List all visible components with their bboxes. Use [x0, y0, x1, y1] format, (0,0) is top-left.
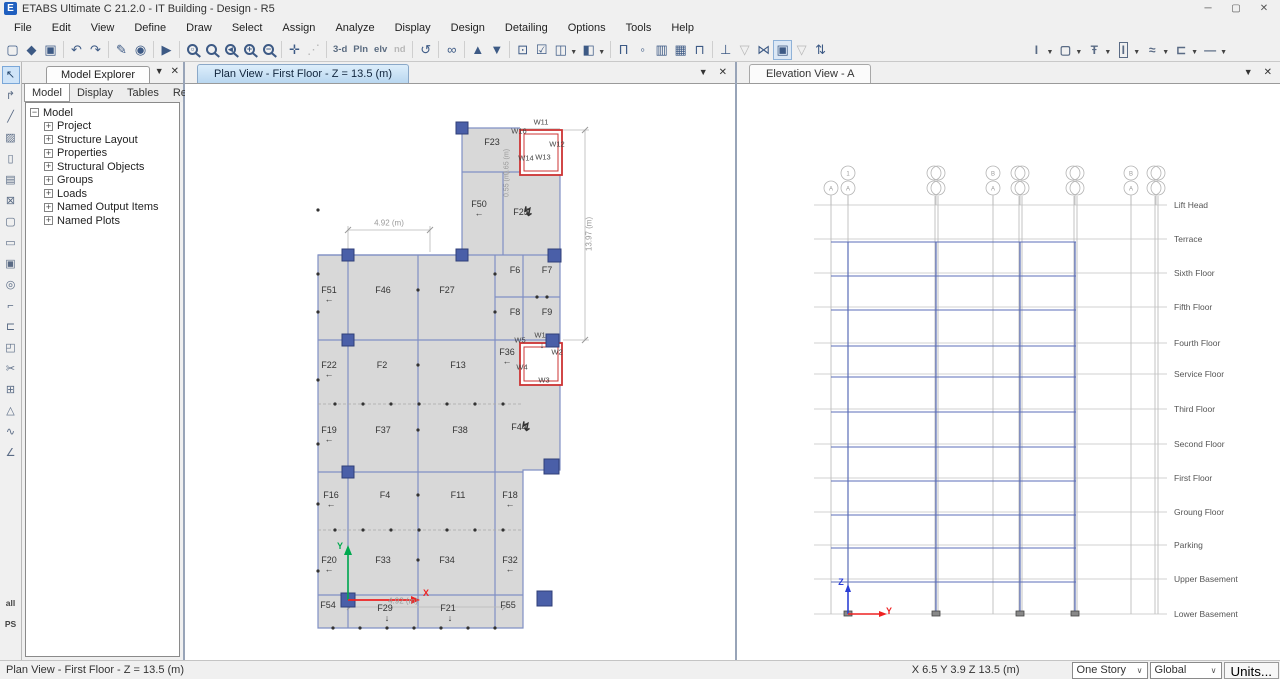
menu-tools[interactable]: Tools	[616, 19, 662, 37]
extruded-view-icon[interactable]: ◧	[579, 40, 598, 60]
tree-item-named-plots[interactable]: +Named Plots	[44, 214, 179, 228]
app-logo-icon: E	[4, 2, 17, 15]
expand-icon[interactable]: +	[44, 216, 53, 225]
story-label: Terrace	[1174, 234, 1202, 244]
story-label: Third Floor	[1174, 404, 1215, 414]
span-direction-arrow: ↓	[448, 613, 453, 623]
window-controls: ─▢✕	[1194, 3, 1278, 14]
model-tree: −Model+Project+Structure Layout+Properti…	[25, 102, 180, 657]
draw-section-cut-icon[interactable]: ✂	[2, 360, 20, 378]
span-direction-arrow: ↯	[523, 204, 534, 220]
story-label: Upper Basement	[1174, 574, 1238, 584]
dimension-label: 0.55 (m)	[504, 171, 511, 197]
svg-text:A: A	[1129, 187, 1133, 193]
expand-icon[interactable]: +	[44, 162, 53, 171]
zoom-out-icon[interactable]: −	[263, 44, 274, 55]
move-down-in-list-icon[interactable]: ▼	[487, 40, 506, 60]
svg-text:B: B	[991, 172, 995, 178]
span-direction-arrow: ←	[325, 294, 334, 304]
slab-label: F7	[542, 265, 553, 275]
wall-label: W14	[518, 154, 533, 163]
story-label: Parking	[1174, 540, 1203, 550]
plan-view-dropdown-icon[interactable]: ▼	[699, 67, 708, 78]
undo-icon[interactable]: ↶	[67, 40, 86, 60]
slab-property-icon[interactable]: ▢	[1055, 41, 1075, 59]
slab-label: F21	[440, 603, 456, 613]
display-options-icon[interactable]: ▣	[773, 40, 792, 60]
elevation-view-tab[interactable]: Elevation View - A	[749, 64, 871, 83]
span-direction-arrow: ←	[475, 208, 484, 218]
tree-item-groups[interactable]: +Groups	[44, 174, 179, 188]
cursor-coordinates: X 6.5 Y 3.9 Z 13.5 (m)	[912, 664, 1020, 676]
elevation-view-window: Elevation View - A ▼ ✕ A1ABABA Z Y Lift …	[737, 62, 1280, 660]
expand-icon[interactable]: +	[44, 122, 53, 131]
wall-label: W1	[534, 331, 545, 340]
tree-item-structure-layout[interactable]: +Structure Layout	[44, 133, 179, 147]
explorer-tab-tables[interactable]: Tables	[120, 84, 166, 102]
slab-label: F27	[439, 285, 455, 295]
menu-draw[interactable]: Draw	[176, 19, 222, 37]
rebar-property-icon[interactable]: ≈	[1142, 41, 1162, 59]
wall-label: W3	[538, 376, 549, 385]
wall-label: W12	[549, 140, 564, 149]
menu-analyze[interactable]: Analyze	[325, 19, 384, 37]
explorer-dropdown-icon[interactable]: ▼	[155, 66, 164, 77]
coordinate-system-selector[interactable]: Global∨	[1150, 662, 1222, 679]
rubber-band-zoom-icon[interactable]: ▫	[187, 44, 198, 55]
chevron-down-icon: ∨	[1137, 666, 1143, 675]
draw-floor-icon[interactable]: ▢	[2, 213, 20, 231]
tree-item-structural-objects[interactable]: +Structural Objects	[44, 160, 179, 174]
collapse-icon[interactable]: −	[30, 108, 39, 117]
svg-text:1: 1	[846, 172, 850, 178]
expand-icon[interactable]: +	[44, 203, 53, 212]
pan-icon[interactable]: ✛	[285, 40, 304, 60]
svg-text:B: B	[1129, 172, 1133, 178]
draw-frame-icon[interactable]: Π	[614, 40, 633, 60]
status-bar: Plan View - First Floor - Z = 13.5 (m) X…	[0, 660, 1280, 679]
slab-label: F54	[320, 600, 336, 610]
perspective-toggle-icon[interactable]: ∞	[442, 40, 461, 60]
menu-detailing[interactable]: Detailing	[495, 19, 558, 37]
dropdown-arrow-icon[interactable]: ▼	[1191, 49, 1198, 56]
restore-full-view-icon[interactable]	[206, 44, 217, 55]
select-all-icon[interactable]: all	[2, 594, 20, 612]
main-toolbar: ▢◆▣↶↷✎◉▶▫◂+−✛⋰3-dPlnelvnd↺∞▲▼⊡☑◫▼◧▼Π◦▥▦⊓…	[0, 38, 1280, 62]
story-label: First Floor	[1174, 473, 1212, 483]
story-label: Groung Floor	[1174, 507, 1224, 517]
wall-label: W16	[511, 127, 526, 136]
frame-property-icon[interactable]: I	[1026, 41, 1046, 59]
story-label: Second Floor	[1174, 439, 1225, 449]
open-model-icon[interactable]: ◆	[22, 40, 41, 60]
window-title: ETABS Ultimate C 21.2.0 - IT Building - …	[22, 3, 275, 15]
story-label: Service Floor	[1174, 369, 1224, 379]
menu-help[interactable]: Help	[661, 19, 704, 37]
dropdown-arrow-icon[interactable]: ▼	[1104, 49, 1111, 56]
object-view-options-icon[interactable]: ◫	[551, 40, 570, 60]
workspace: ↖↱╱▨▯▤⊠▢▭▣◎⌐⊏◰✂⊞△∿∠allPS Model Explorer …	[0, 62, 1280, 660]
shrink-objects-icon[interactable]: ⊡	[513, 40, 532, 60]
plan-axis-x-label: X	[423, 588, 429, 598]
span-direction-arrow: ←	[327, 499, 336, 509]
span-direction-arrow: ←	[325, 369, 334, 379]
select-pointer-icon[interactable]: ↖	[2, 66, 20, 84]
snap-to-point-icon[interactable]: ◦	[633, 40, 652, 60]
draw-wall-icon[interactable]: ◎	[2, 276, 20, 294]
expand-icon[interactable]: +	[44, 176, 53, 185]
tree-item-properties[interactable]: +Properties	[44, 147, 179, 161]
expand-icon[interactable]: +	[44, 135, 53, 144]
slab-label: F55	[500, 600, 516, 610]
quick-draw-frame-icon[interactable]: ▯	[2, 150, 20, 168]
rotate-3d-view-icon[interactable]: ↺	[416, 40, 435, 60]
slab-label: F4	[380, 490, 391, 500]
plan-view-icon[interactable]: Pln	[350, 40, 371, 60]
plan-view-tab[interactable]: Plan View - First Floor - Z = 13.5 (m)	[197, 64, 409, 83]
quick-draw-secondary-beams-icon[interactable]: ▤	[2, 171, 20, 189]
status-view-text: Plan View - First Floor - Z = 13.5 (m)	[6, 664, 184, 676]
assign-diaphragm-icon[interactable]: ▽	[735, 40, 754, 60]
explorer-close-icon[interactable]: ✕	[171, 66, 179, 77]
span-direction-arrow: ↯	[521, 419, 532, 435]
draw-rect-floor-icon[interactable]: ▭	[2, 234, 20, 252]
elevation-axis-z-label: Z	[838, 577, 844, 587]
elevation-axis-y-label: Y	[886, 606, 892, 616]
draw-frame-icon[interactable]: ▨	[2, 129, 20, 147]
slab-label: F11	[451, 490, 466, 500]
svg-text:A: A	[991, 187, 995, 193]
dropdown-arrow-icon[interactable]: ▼	[598, 49, 605, 56]
tree-item-model[interactable]: −Model	[30, 106, 179, 120]
elevation-canvas[interactable]: A1ABABA Z Y Lift HeadTerraceSixth FloorF…	[737, 84, 1280, 660]
span-direction-arrow: ←	[325, 434, 334, 444]
previous-selection-icon[interactable]: PS	[2, 615, 20, 633]
plan-canvas[interactable]: X Y 4.92 (m)13.97 (m)0.65 (m)0.55 (m)4.9…	[185, 84, 735, 660]
menu-edit[interactable]: Edit	[42, 19, 81, 37]
tree-item-loads[interactable]: +Loads	[44, 187, 179, 201]
plan-view-close-icon[interactable]: ✕	[719, 67, 727, 78]
draw-reference-line-icon[interactable]: ∠	[2, 444, 20, 462]
dropdown-arrow-icon[interactable]: ▼	[1075, 49, 1082, 56]
draw-grid-icon[interactable]: ⊞	[2, 381, 20, 399]
steel-joist-property-icon[interactable]: ⊏	[1171, 41, 1191, 59]
span-direction-arrow: ↓	[385, 613, 390, 623]
edit-icon[interactable]: ✎	[112, 40, 131, 60]
story-label: Lift Head	[1174, 200, 1208, 210]
menu-design[interactable]: Design	[441, 19, 495, 37]
close-icon[interactable]: ✕	[1250, 3, 1278, 14]
expand-icon[interactable]: +	[44, 149, 53, 158]
wall-label: W5	[514, 336, 525, 345]
wall-label: W13	[535, 153, 550, 162]
minimize-icon[interactable]: ─	[1194, 3, 1222, 14]
draw-wall-stack-icon[interactable]: ⊏	[2, 318, 20, 336]
wall-label: W2	[551, 348, 562, 357]
wall-label: W4	[516, 363, 527, 372]
menu-define[interactable]: Define	[124, 19, 176, 37]
menu-file[interactable]: File	[4, 19, 42, 37]
svg-text:A: A	[846, 187, 850, 193]
explorer-tab-display[interactable]: Display	[70, 84, 120, 102]
span-direction-arrow: ←	[506, 564, 515, 574]
3d-view-icon[interactable]: 3-d	[330, 40, 350, 60]
plan-axis-y-label: Y	[337, 541, 343, 551]
quick-draw-wall-icon[interactable]: ⌐	[2, 297, 20, 315]
move-up-in-list-icon[interactable]: ▲	[468, 40, 487, 60]
quick-draw-braces-icon[interactable]: ⊠	[2, 192, 20, 210]
link-property-icon[interactable]: —	[1200, 41, 1220, 59]
draw-dimension-icon[interactable]: ∿	[2, 423, 20, 441]
span-direction-arrow: ←	[503, 356, 512, 366]
explorer-tab-model[interactable]: Model	[24, 84, 70, 102]
draw-joint-icon[interactable]: ╱	[2, 108, 20, 126]
plan-view-window: Plan View - First Floor - Z = 13.5 (m) ▼…	[185, 62, 737, 660]
slab-label: F8	[510, 307, 521, 317]
measure-icon[interactable]: ⋰	[304, 40, 323, 60]
menu-options[interactable]: Options	[558, 19, 616, 37]
story-label: Lower Basement	[1174, 609, 1238, 619]
reshape-object-icon[interactable]: ↱	[2, 87, 20, 105]
assign-spandrel-icon[interactable]: ▽	[792, 40, 811, 60]
elevation-view-icon[interactable]: elv	[371, 40, 390, 60]
slab-label: F34	[439, 555, 455, 565]
slab-label: F33	[375, 555, 391, 565]
span-direction-arrow: ←	[506, 499, 515, 509]
tree-item-named-output-items[interactable]: +Named Output Items	[44, 201, 179, 215]
quick-draw-floor-icon[interactable]: ▣	[2, 255, 20, 273]
slab-label: F13	[450, 360, 466, 370]
expand-icon[interactable]: +	[44, 189, 53, 198]
slab-label: F29	[377, 603, 393, 613]
elevation-view-close-icon[interactable]: ✕	[1264, 67, 1272, 78]
assign-support-icon[interactable]: ⊥	[716, 40, 735, 60]
show-selection-icon[interactable]: ☑	[532, 40, 551, 60]
slab-label: F23	[484, 137, 500, 147]
dimension-label: 13.97 (m)	[585, 217, 594, 251]
elevation-view-dropdown-icon[interactable]: ▼	[1244, 67, 1253, 78]
menu-assign[interactable]: Assign	[272, 19, 325, 37]
slab-label: F37	[375, 425, 391, 435]
model-explorer-title: Model Explorer	[46, 66, 150, 83]
quick-draw-wall-icon[interactable]: ▦	[671, 40, 690, 60]
span-direction-arrow: ←	[325, 564, 334, 574]
dropdown-arrow-icon[interactable]: ▼	[1046, 49, 1053, 56]
draw-wall-icon[interactable]: ▥	[652, 40, 671, 60]
slab-label: F9	[542, 307, 553, 317]
story-label: Sixth Floor	[1174, 268, 1215, 278]
maximize-icon[interactable]: ▢	[1222, 3, 1250, 14]
title-bar: E ETABS Ultimate C 21.2.0 - IT Building …	[0, 0, 1280, 17]
dropdown-arrow-icon[interactable]: ▼	[1133, 49, 1140, 56]
draw-opening-icon[interactable]: ◰	[2, 339, 20, 357]
tree-item-project[interactable]: +Project	[44, 120, 179, 134]
save-model-icon[interactable]: ▣	[41, 40, 60, 60]
tendon-property-icon[interactable]: Ŧ	[1084, 41, 1104, 59]
menu-display[interactable]: Display	[385, 19, 441, 37]
dimension-label: 4.92 (m)	[374, 219, 404, 228]
wall-property-icon[interactable]: I	[1113, 41, 1133, 59]
svg-text:A: A	[829, 187, 833, 193]
previous-zoom-icon[interactable]: ◂	[225, 44, 236, 55]
zoom-in-icon[interactable]: +	[244, 44, 255, 55]
redo-icon[interactable]: ↷	[86, 40, 105, 60]
menu-bar: FileEditViewDefineDrawSelectAssignAnalyz…	[0, 17, 1280, 38]
menu-select[interactable]: Select	[222, 19, 273, 37]
units-button[interactable]: Units...	[1224, 662, 1279, 679]
lock-model-icon[interactable]: ◉	[131, 40, 150, 60]
dropdown-arrow-icon[interactable]: ▼	[1162, 49, 1169, 56]
new-model-icon[interactable]: ▢	[3, 40, 22, 60]
draw-ramp-icon[interactable]: △	[2, 402, 20, 420]
chevron-down-icon: ∨	[1211, 666, 1217, 675]
span-direction-arrow: ↓	[540, 340, 545, 350]
dropdown-arrow-icon[interactable]: ▼	[570, 49, 577, 56]
story-selector[interactable]: One Story∨	[1072, 662, 1148, 679]
draw-toolbar: ↖↱╱▨▯▤⊠▢▭▣◎⌐⊏◰✂⊞△∿∠allPS	[0, 62, 22, 660]
slab-label: F6	[510, 265, 521, 275]
slab-label: F2	[377, 360, 388, 370]
assign-pier-icon[interactable]: ⋈	[754, 40, 773, 60]
story-label: Fifth Floor	[1174, 302, 1212, 312]
story-label: Fourth Floor	[1174, 338, 1220, 348]
dropdown-arrow-icon[interactable]: ▼	[1220, 49, 1227, 56]
run-analysis-icon[interactable]: ▶	[157, 40, 176, 60]
named-display-icon[interactable]: nd	[390, 40, 409, 60]
menu-view[interactable]: View	[81, 19, 125, 37]
model-explorer-panel: Model Explorer ▼ ✕ ModelDisplayTablesRep…	[22, 62, 185, 660]
slab-label: F38	[452, 425, 468, 435]
reorder-icon[interactable]: ⇅	[811, 40, 830, 60]
slab-label: F46	[375, 285, 391, 295]
wall-label: W11	[534, 118, 549, 127]
draw-support-icon[interactable]: ⊓	[690, 40, 709, 60]
